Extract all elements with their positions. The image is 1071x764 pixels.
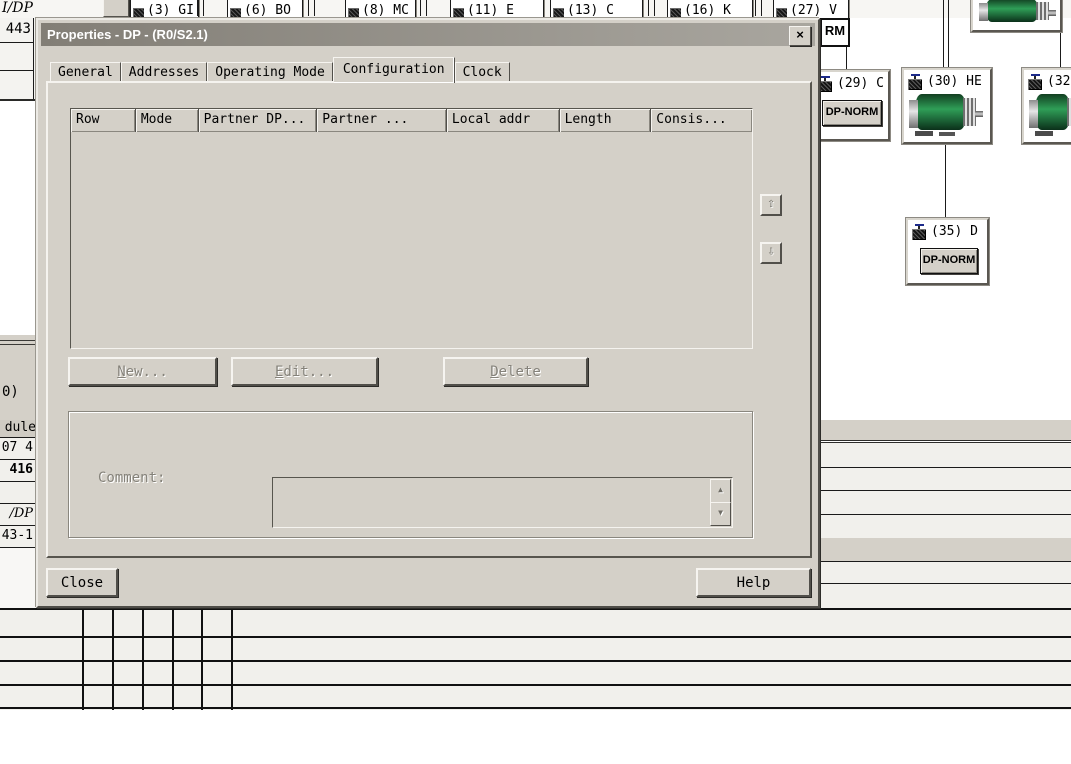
edit-button[interactable]: Edit... [231,357,378,386]
rm-device-badge[interactable]: RM [820,18,850,47]
column-header-mode[interactable]: Mode [136,109,199,132]
dp-slave-icon [453,8,464,18]
bus-drop-line [203,0,204,16]
tab-strip: General Addresses Operating Mode Configu… [50,58,510,83]
left-rows-fragment: 07 4 416 /DP 43-1 [0,438,36,548]
bus-drop-line [197,0,198,16]
pane-divider [820,440,1071,441]
dp-slave-icon [1028,74,1043,91]
column-header-partner[interactable]: Partner ... [317,109,447,132]
dp-slave-icon [348,8,359,18]
move-down-button[interactable]: ⇩ [760,242,782,264]
arrow-down-icon: ⇩ [767,244,775,259]
lower-pane-header-fragment [820,420,1071,440]
bus-device-label: (16) K [684,4,731,18]
lower-pane-grid [0,608,1071,710]
close-button[interactable]: Close [46,568,118,597]
triangle-up-icon: ▲ [718,485,723,494]
toolbar-fragment-button[interactable] [103,0,129,17]
bus-device-label: (11) E [467,4,514,18]
tab-addresses[interactable]: Addresses [121,62,207,83]
bus-drop-line [420,0,421,16]
bus-drop-line [308,0,309,16]
bus-drop-line [654,0,655,16]
tab-general[interactable]: General [50,62,121,83]
bus-device-11[interactable]: (11) E [450,0,544,18]
table-row: 07 4 [0,438,36,460]
dp-norm-badge: DP-NORM [920,248,978,274]
device-label: (29) C [837,76,884,91]
column-header-consistency[interactable]: Consis... [651,109,752,132]
device-box-29[interactable]: (29) C DP-NORM [812,70,890,141]
bus-drop-line [761,0,762,16]
dialog-titlebar[interactable]: Properties - DP - (R0/S2.1) [41,23,815,46]
pane-divider [0,340,36,341]
bus-device-3[interactable]: (3) GI [130,0,199,18]
column-header-partner-dp[interactable]: Partner DP... [199,109,318,132]
bus-device-6[interactable]: (6) BO [227,0,303,18]
properties-dialog: Properties - DP - (R0/S2.1) × General Ad… [36,18,820,608]
configuration-table[interactable]: Row Mode Partner DP... Partner ... Local… [70,108,753,349]
device-box-35[interactable]: (35) D DP-NORM [906,218,989,285]
tab-configuration[interactable]: Configuration [333,57,455,83]
delete-button[interactable]: Delete [443,357,588,386]
dp-slave-icon [912,224,927,241]
device-box-30[interactable]: (30) HE [902,68,992,144]
motor-image [979,0,1056,26]
table-row: 416 [0,460,36,482]
column-header-length[interactable]: Length [560,109,652,132]
tab-clock[interactable]: Clock [455,62,510,83]
connection-line [846,45,847,70]
dp-slave-icon [776,8,787,18]
bus-device-label: (13) C [567,4,614,18]
table-row: 43-1 [0,526,36,548]
left-rows-tail [0,548,36,608]
motor-image [909,92,983,136]
connection-line [1060,30,1061,68]
left-pane-text: 0) [2,384,19,400]
table-row: /DP [0,504,36,526]
connection-line [943,0,944,68]
device-box-top[interactable] [971,0,1062,32]
pane-divider [0,344,36,345]
bus-device-label: (6) BO [244,4,291,18]
bus-drop-line [648,0,649,16]
new-button[interactable]: New... [68,357,217,386]
bus-device-16[interactable]: (16) K [667,0,753,18]
left-column-header: dule [0,420,38,438]
bus-device-label: (8) MC [362,4,409,18]
bus-device-8[interactable]: (8) MC [345,0,416,18]
arrow-up-icon: ⇧ [767,196,775,211]
dp-norm-badge: DP-NORM [822,100,882,126]
left-table-fragment: 443 [0,18,36,101]
close-icon[interactable]: × [789,26,811,46]
help-button[interactable]: Help [696,568,811,597]
bus-drop-line [314,0,315,16]
comment-label: Comment: [98,470,165,486]
bus-drop-line [755,0,756,16]
dialog-title: Properties - DP - (R0/S2.1) [47,27,208,42]
dp-slave-icon [818,76,833,93]
textarea-scrollbar: ▲ ▼ [710,479,731,526]
column-header-local-addr[interactable]: Local addr [447,109,560,132]
device-label: (32 [1047,74,1070,89]
motor-image [1029,92,1071,136]
triangle-down-icon: ▼ [718,508,723,517]
lower-pane-rows-fragment [820,443,1071,608]
left-pane-gray [0,335,36,420]
scroll-down-button[interactable]: ▼ [710,502,731,526]
tab-operating-mode[interactable]: Operating Mode [207,62,333,83]
bus-device-27[interactable]: (27) V [773,0,849,18]
connection-line [945,140,946,218]
dp-slave-icon [908,74,923,91]
scroll-up-button[interactable]: ▲ [710,479,731,503]
table-row [0,482,36,504]
screen: { "window": { "title": "Properties - DP … [0,0,1071,764]
table-header: Row Mode Partner DP... Partner ... Local… [71,109,752,132]
bus-device-13[interactable]: (13) C [550,0,643,18]
dp-slave-icon [230,8,241,18]
dp-slave-icon [553,8,564,18]
bus-device-label: (3) GI [147,4,194,18]
bus-strip: I/DP (3) GI (6) BO (8) MC (11) E (13) C … [0,0,1071,18]
bus-drop-line [426,0,427,16]
selected-row-fragment [820,538,1071,561]
left-cell-value: 443 [0,21,31,37]
device-label: (30) HE [927,74,982,89]
dp-slave-icon [133,8,144,18]
column-header-row[interactable]: Row [71,109,136,132]
bus-device-label: (27) V [790,4,837,18]
connection-line [948,0,949,68]
dp-slave-icon [670,8,681,18]
move-up-button[interactable]: ⇧ [760,194,782,216]
bus-name-label: I/DP [2,0,33,16]
device-box-32[interactable]: (32 [1022,68,1071,144]
device-label: (35) D [931,224,978,239]
comment-textarea[interactable]: ▲ ▼ [272,477,733,528]
